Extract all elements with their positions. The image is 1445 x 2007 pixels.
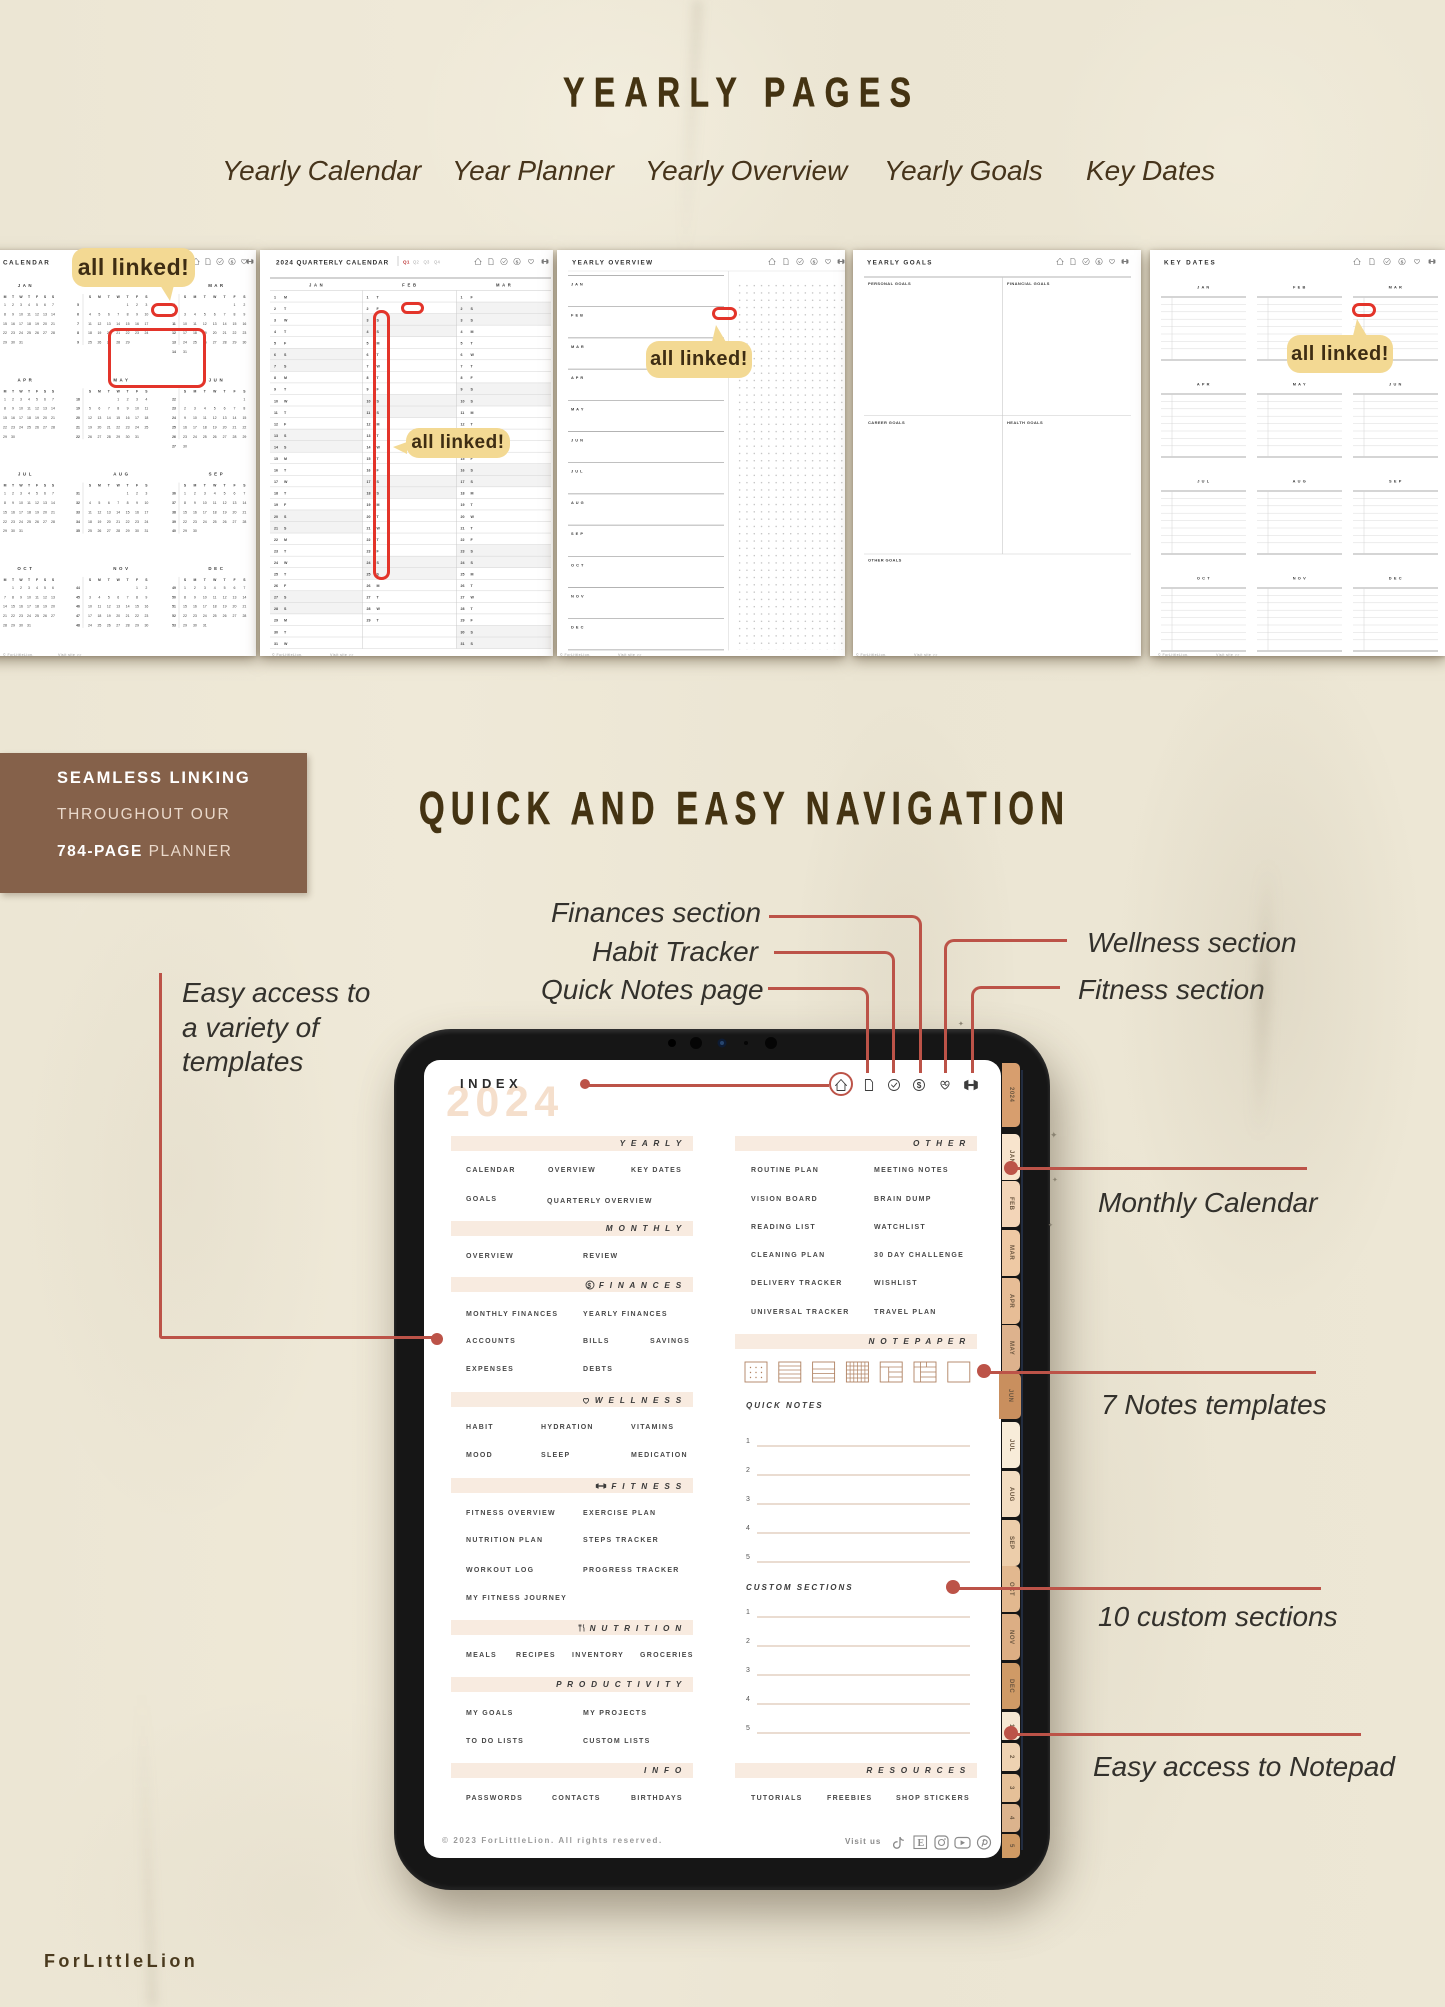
svg-text:F: F	[471, 619, 474, 623]
svg-text:S: S	[145, 389, 148, 393]
svg-text:15: 15	[183, 510, 187, 514]
svg-text:1: 1	[243, 397, 245, 401]
svg-text:4: 4	[367, 330, 369, 334]
svg-text:22: 22	[3, 331, 7, 335]
svg-text:31: 31	[27, 624, 31, 628]
svg-text:W: W	[213, 389, 217, 393]
svg-text:18: 18	[274, 492, 278, 496]
svg-text:J A N: J A N	[1197, 285, 1210, 290]
svg-text:YEARLY GOALS: YEARLY GOALS	[867, 260, 933, 267]
svg-text:26: 26	[274, 584, 278, 588]
svg-text:© ForLittleLion.: © ForLittleLion.	[272, 653, 303, 656]
svg-text:21: 21	[233, 426, 237, 430]
svg-text:27: 27	[172, 444, 176, 448]
svg-text:21: 21	[3, 614, 7, 618]
svg-text:F: F	[136, 295, 138, 299]
svg-text:53: 53	[172, 624, 176, 628]
svg-text:26: 26	[172, 435, 176, 439]
svg-text:T: T	[28, 389, 31, 393]
svg-text:M: M	[284, 538, 287, 542]
svg-text:11: 11	[213, 595, 217, 599]
svg-text:13: 13	[233, 501, 237, 505]
svg-text:24: 24	[193, 435, 197, 439]
svg-text:13: 13	[367, 434, 371, 438]
svg-text:F: F	[36, 389, 38, 393]
svg-text:27: 27	[274, 596, 278, 600]
svg-text:S E P: S E P	[1389, 479, 1402, 484]
svg-text:2: 2	[367, 307, 369, 311]
svg-text:F: F	[36, 295, 38, 299]
svg-text:T: T	[284, 411, 287, 415]
svg-text:HEALTH GOALS: HEALTH GOALS	[1007, 420, 1043, 425]
svg-text:18: 18	[76, 397, 80, 401]
svg-text:S E P: S E P	[209, 472, 224, 477]
svg-text:F: F	[233, 484, 235, 488]
svg-text:13: 13	[223, 416, 227, 420]
svg-text:25: 25	[27, 331, 31, 335]
svg-text:3: 3	[194, 407, 196, 411]
svg-text:M: M	[193, 389, 196, 393]
svg-text:S: S	[89, 295, 92, 299]
svg-text:4: 4	[145, 397, 147, 401]
svg-text:16: 16	[367, 469, 371, 473]
svg-text:3: 3	[136, 397, 138, 401]
svg-text:7: 7	[117, 501, 119, 505]
svg-text:22: 22	[76, 435, 80, 439]
svg-text:M A R: M A R	[571, 344, 584, 349]
svg-text:F: F	[471, 376, 474, 380]
svg-text:7: 7	[77, 322, 79, 326]
svg-text:Visit site >>: Visit site >>	[58, 653, 82, 656]
svg-text:16: 16	[11, 510, 15, 514]
svg-text:15: 15	[11, 605, 15, 609]
svg-text:M: M	[4, 578, 7, 582]
svg-text:25: 25	[88, 341, 92, 345]
svg-text:2: 2	[127, 397, 129, 401]
svg-text:6: 6	[367, 353, 369, 357]
svg-text:15: 15	[126, 510, 130, 514]
svg-text:1: 1	[12, 586, 14, 590]
svg-text:4: 4	[28, 303, 30, 307]
svg-text:20: 20	[213, 331, 217, 335]
svg-text:29: 29	[126, 529, 130, 533]
svg-text:A U G: A U G	[571, 500, 584, 505]
svg-text:A U G: A U G	[1293, 479, 1307, 484]
svg-text:F E B: F E B	[571, 313, 583, 318]
svg-text:T: T	[108, 578, 111, 582]
svg-text:11: 11	[35, 595, 39, 599]
svg-text:F E B: F E B	[402, 283, 417, 288]
svg-text:T: T	[284, 330, 287, 334]
svg-text:29: 29	[233, 341, 237, 345]
svg-text:3: 3	[746, 1496, 750, 1503]
svg-text:21: 21	[51, 416, 55, 420]
svg-text:27: 27	[223, 435, 227, 439]
svg-text:J A N: J A N	[571, 282, 583, 287]
svg-text:F: F	[233, 389, 235, 393]
svg-text:F: F	[136, 578, 138, 582]
svg-text:17: 17	[144, 510, 148, 514]
svg-text:T: T	[471, 365, 474, 369]
svg-text:4: 4	[28, 397, 30, 401]
svg-text:1: 1	[184, 586, 186, 590]
svg-text:16: 16	[11, 322, 15, 326]
svg-text:11: 11	[88, 322, 92, 326]
svg-text:2: 2	[274, 307, 276, 311]
svg-text:M: M	[193, 484, 196, 488]
svg-text:24: 24	[274, 561, 278, 565]
svg-text:13: 13	[43, 407, 47, 411]
svg-text:27: 27	[461, 596, 465, 600]
svg-text:18: 18	[213, 510, 217, 514]
svg-text:S: S	[89, 578, 92, 582]
svg-text:J U N: J U N	[571, 438, 583, 443]
svg-text:21: 21	[242, 605, 246, 609]
svg-text:17: 17	[19, 416, 23, 420]
svg-text:F: F	[136, 484, 138, 488]
svg-text:39: 39	[172, 520, 176, 524]
svg-text:14: 14	[367, 445, 371, 449]
svg-text:16: 16	[19, 605, 23, 609]
svg-text:29: 29	[274, 619, 278, 623]
svg-text:9: 9	[77, 341, 79, 345]
svg-text:26: 26	[97, 341, 101, 345]
svg-text:OTHER GOALS: OTHER GOALS	[868, 558, 902, 563]
svg-text:6: 6	[108, 501, 110, 505]
svg-text:15: 15	[126, 322, 130, 326]
svg-text:30: 30	[242, 341, 246, 345]
svg-text:26: 26	[223, 614, 227, 618]
svg-text:22: 22	[116, 426, 120, 430]
svg-text:22: 22	[242, 426, 246, 430]
svg-text:T: T	[471, 526, 474, 530]
svg-text:25: 25	[27, 520, 31, 524]
svg-text:2: 2	[194, 586, 196, 590]
svg-text:6: 6	[44, 492, 46, 496]
svg-text:31: 31	[274, 642, 278, 646]
svg-text:8: 8	[4, 407, 6, 411]
svg-text:22: 22	[233, 331, 237, 335]
svg-text:6: 6	[77, 312, 79, 316]
svg-text:20: 20	[274, 515, 278, 519]
svg-text:36: 36	[172, 492, 176, 496]
svg-text:28: 28	[116, 529, 120, 533]
svg-text:S: S	[145, 578, 148, 582]
svg-text:28: 28	[461, 607, 465, 611]
svg-text:T: T	[224, 578, 227, 582]
svg-text:S: S	[52, 389, 55, 393]
svg-text:A P R: A P R	[18, 377, 33, 382]
svg-text:28: 28	[233, 435, 237, 439]
svg-text:30: 30	[11, 529, 15, 533]
svg-text:17: 17	[203, 510, 207, 514]
svg-text:17: 17	[19, 322, 23, 326]
svg-text:M A Y: M A Y	[571, 406, 584, 411]
svg-text:T: T	[127, 484, 130, 488]
svg-text:7: 7	[52, 397, 54, 401]
svg-text:© ForLittleLion.: © ForLittleLion.	[3, 653, 34, 656]
svg-text:21: 21	[116, 520, 120, 524]
svg-text:3: 3	[145, 303, 147, 307]
svg-text:29: 29	[11, 624, 15, 628]
svg-text:1: 1	[127, 303, 129, 307]
svg-text:27: 27	[233, 520, 237, 524]
svg-text:14: 14	[51, 407, 55, 411]
svg-text:17: 17	[274, 480, 278, 484]
svg-text:T: T	[204, 389, 207, 393]
svg-text:12: 12	[223, 595, 227, 599]
svg-text:19: 19	[461, 503, 465, 507]
svg-text:$: $	[813, 259, 816, 265]
svg-text:26: 26	[461, 584, 465, 588]
svg-text:19: 19	[107, 614, 111, 618]
svg-text:14: 14	[242, 595, 246, 599]
svg-text:T: T	[377, 619, 380, 623]
svg-text:30: 30	[193, 529, 197, 533]
svg-text:CALENDAR: CALENDAR	[3, 260, 50, 267]
svg-text:T: T	[204, 578, 207, 582]
svg-text:15: 15	[274, 457, 278, 461]
svg-text:$: $	[586, 1283, 593, 1290]
svg-text:5: 5	[224, 492, 226, 496]
svg-text:S: S	[243, 389, 246, 393]
svg-text:Q2: Q2	[413, 260, 419, 265]
svg-text:Q1: Q1	[403, 260, 410, 265]
svg-text:11: 11	[27, 501, 31, 505]
svg-text:M: M	[471, 330, 474, 334]
svg-text:26: 26	[35, 331, 39, 335]
svg-text:W: W	[19, 295, 23, 299]
svg-text:24: 24	[88, 624, 92, 628]
svg-text:11: 11	[274, 411, 278, 415]
svg-text:40: 40	[172, 529, 176, 533]
svg-text:20: 20	[233, 605, 237, 609]
svg-text:17: 17	[19, 510, 23, 514]
svg-text:17: 17	[193, 426, 197, 430]
svg-text:2: 2	[461, 307, 463, 311]
svg-text:23: 23	[135, 520, 139, 524]
svg-text:26: 26	[213, 435, 217, 439]
svg-text:F: F	[36, 578, 38, 582]
svg-text:8: 8	[234, 312, 236, 316]
svg-text:9: 9	[20, 595, 22, 599]
svg-text:14: 14	[107, 416, 111, 420]
svg-text:21: 21	[107, 426, 111, 430]
svg-text:J U N: J U N	[209, 377, 224, 382]
svg-text:W: W	[117, 484, 121, 488]
svg-text:11: 11	[27, 407, 31, 411]
svg-text:25: 25	[88, 529, 92, 533]
svg-text:5: 5	[98, 312, 100, 316]
svg-text:8: 8	[4, 312, 6, 316]
svg-text:30: 30	[11, 341, 15, 345]
svg-text:20: 20	[233, 510, 237, 514]
svg-text:19: 19	[223, 510, 227, 514]
svg-text:S: S	[184, 578, 187, 582]
svg-text:44: 44	[76, 586, 80, 590]
svg-text:6: 6	[117, 595, 119, 599]
svg-text:M: M	[193, 578, 196, 582]
svg-text:27: 27	[43, 426, 47, 430]
svg-text:19: 19	[35, 416, 39, 420]
svg-text:2: 2	[136, 492, 138, 496]
svg-text:T: T	[471, 584, 474, 588]
svg-text:10: 10	[183, 322, 187, 326]
svg-text:12: 12	[97, 510, 101, 514]
svg-text:5: 5	[36, 303, 38, 307]
svg-text:21: 21	[242, 510, 246, 514]
svg-text:S: S	[243, 295, 246, 299]
svg-text:11: 11	[98, 605, 102, 609]
svg-text:10: 10	[19, 501, 23, 505]
svg-text:F: F	[284, 422, 287, 426]
svg-text:17: 17	[367, 480, 371, 484]
svg-text:6: 6	[44, 397, 46, 401]
svg-text:21: 21	[126, 614, 130, 618]
svg-text:13: 13	[51, 595, 55, 599]
svg-text:M A R: M A R	[208, 283, 224, 288]
svg-text:© ForLittleLion.: © ForLittleLion.	[1158, 653, 1189, 656]
svg-text:37: 37	[172, 501, 176, 505]
svg-text:7: 7	[224, 312, 226, 316]
svg-text:S: S	[44, 578, 47, 582]
svg-text:T: T	[471, 607, 474, 611]
svg-text:22: 22	[367, 538, 371, 542]
svg-text:W: W	[213, 484, 217, 488]
svg-text:31: 31	[135, 435, 139, 439]
svg-text:10: 10	[144, 312, 148, 316]
svg-text:30: 30	[461, 630, 465, 634]
svg-text:T: T	[224, 295, 227, 299]
svg-text:30: 30	[144, 624, 148, 628]
svg-text:KEY DATES: KEY DATES	[1164, 260, 1217, 267]
svg-text:W: W	[19, 578, 23, 582]
svg-text:18: 18	[88, 520, 92, 524]
svg-text:20: 20	[116, 614, 120, 618]
svg-text:F: F	[284, 342, 287, 346]
svg-text:1: 1	[4, 303, 6, 307]
svg-text:19: 19	[213, 426, 217, 430]
svg-text:9: 9	[12, 407, 14, 411]
svg-text:29: 29	[3, 435, 7, 439]
svg-text:9: 9	[127, 407, 129, 411]
svg-text:11: 11	[27, 312, 31, 316]
svg-text:9: 9	[136, 312, 138, 316]
svg-text:25: 25	[461, 573, 465, 577]
svg-text:1: 1	[117, 397, 119, 401]
svg-text:8: 8	[184, 501, 186, 505]
svg-text:M: M	[98, 295, 101, 299]
svg-text:6: 6	[44, 303, 46, 307]
svg-text:22: 22	[3, 426, 7, 430]
svg-text:24: 24	[19, 331, 23, 335]
svg-text:S: S	[145, 295, 148, 299]
svg-text:14: 14	[116, 510, 120, 514]
svg-text:33: 33	[76, 510, 80, 514]
svg-text:1: 1	[4, 397, 6, 401]
svg-text:T: T	[28, 295, 31, 299]
svg-text:D E C: D E C	[208, 566, 223, 571]
svg-text:27: 27	[116, 624, 120, 628]
svg-text:S: S	[44, 295, 47, 299]
svg-text:N O V: N O V	[571, 594, 584, 599]
svg-text:F: F	[284, 503, 287, 507]
svg-text:3: 3	[20, 303, 22, 307]
svg-text:S: S	[89, 389, 92, 393]
svg-text:T: T	[284, 549, 287, 553]
svg-text:N O V: N O V	[113, 566, 128, 571]
svg-text:8: 8	[243, 407, 245, 411]
svg-text:10: 10	[19, 407, 23, 411]
svg-text:6: 6	[108, 312, 110, 316]
svg-text:T: T	[204, 484, 207, 488]
svg-text:$: $	[231, 259, 234, 265]
svg-text:M: M	[284, 376, 287, 380]
svg-text:5: 5	[108, 595, 110, 599]
svg-text:6: 6	[461, 353, 463, 357]
svg-text:S: S	[184, 389, 187, 393]
svg-text:11: 11	[203, 416, 207, 420]
svg-text:16: 16	[242, 322, 246, 326]
svg-text:12: 12	[223, 501, 227, 505]
svg-text:17: 17	[461, 480, 465, 484]
svg-text:9: 9	[367, 388, 369, 392]
svg-text:26: 26	[88, 435, 92, 439]
svg-text:F: F	[233, 295, 235, 299]
svg-text:27: 27	[51, 614, 55, 618]
svg-text:14: 14	[51, 312, 55, 316]
svg-text:15: 15	[367, 457, 371, 461]
svg-text:M: M	[471, 411, 474, 415]
svg-text:18: 18	[461, 492, 465, 496]
svg-text:4: 4	[274, 330, 276, 334]
svg-text:13: 13	[213, 322, 217, 326]
svg-text:16: 16	[274, 469, 278, 473]
svg-text:18: 18	[203, 426, 207, 430]
svg-text:M: M	[284, 295, 287, 299]
svg-text:21: 21	[274, 526, 278, 530]
svg-text:11: 11	[213, 501, 217, 505]
svg-text:10: 10	[135, 407, 139, 411]
svg-text:18: 18	[144, 416, 148, 420]
svg-text:T: T	[204, 295, 207, 299]
svg-text:25: 25	[213, 614, 217, 618]
svg-text:© ForLittleLion.: © ForLittleLion.	[856, 653, 887, 656]
svg-text:10: 10	[367, 399, 371, 403]
svg-text:8: 8	[136, 595, 138, 599]
svg-text:25: 25	[144, 426, 148, 430]
svg-text:15: 15	[3, 510, 7, 514]
svg-text:24: 24	[203, 520, 207, 524]
svg-text:J U L: J U L	[18, 472, 32, 477]
svg-text:4: 4	[746, 1696, 750, 1703]
svg-text:18: 18	[27, 416, 31, 420]
svg-text:8: 8	[127, 312, 129, 316]
svg-text:19: 19	[76, 407, 80, 411]
svg-text:23: 23	[11, 331, 15, 335]
svg-text:2: 2	[12, 397, 14, 401]
svg-text:T: T	[471, 422, 474, 426]
svg-text:2024 QUARTERLY CALENDAR: 2024 QUARTERLY CALENDAR	[276, 260, 389, 267]
svg-text:23: 23	[11, 520, 15, 524]
svg-text:W: W	[117, 578, 121, 582]
svg-text:16: 16	[183, 426, 187, 430]
svg-text:T: T	[108, 389, 111, 393]
svg-text:9: 9	[243, 312, 245, 316]
svg-text:8: 8	[77, 331, 79, 335]
svg-text:22: 22	[274, 538, 278, 542]
svg-text:1: 1	[461, 295, 463, 299]
